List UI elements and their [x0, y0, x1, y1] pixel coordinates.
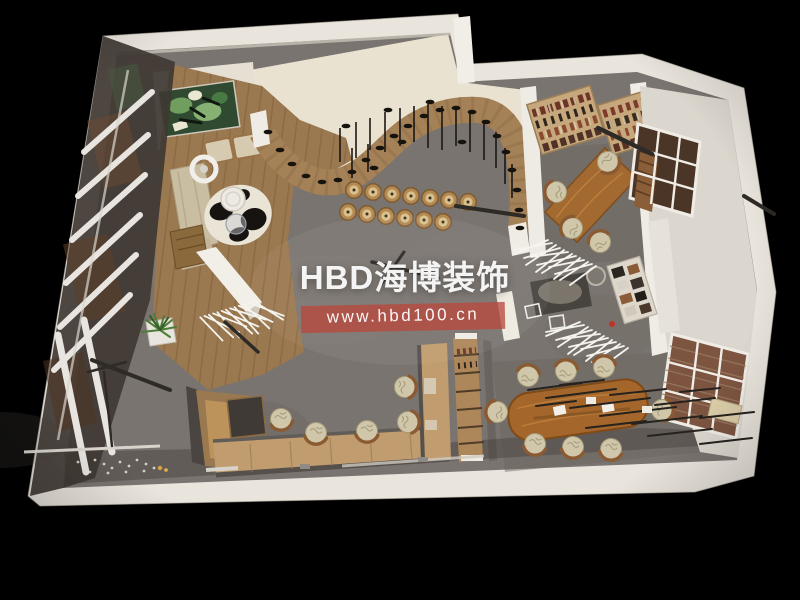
interior-render-scene: HBD海博装饰 www.hbd100.cn — [0, 0, 800, 600]
watermark-brand: HBD海博装饰 — [294, 260, 516, 296]
watermark-url: www.hbd100.cn — [301, 304, 505, 328]
floorplan-render — [0, 0, 800, 600]
vignette — [0, 0, 800, 600]
